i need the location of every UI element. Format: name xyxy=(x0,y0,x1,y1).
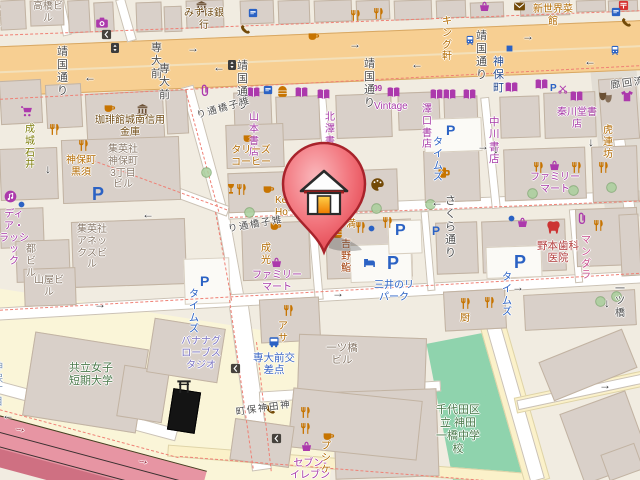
bookstore-icon xyxy=(316,87,331,102)
station-icon xyxy=(465,35,475,45)
direction-arrow: ← xyxy=(584,54,596,68)
map-label: みずほ銀 行 xyxy=(182,8,226,32)
map-label: Vintage xyxy=(374,101,408,113)
subway-entrance-icon xyxy=(101,29,112,40)
cafe-icon xyxy=(307,29,320,42)
map-label: 神保町 黒須 xyxy=(64,155,98,179)
direction-arrow: → xyxy=(512,280,524,294)
direction-arrow: → xyxy=(187,41,199,55)
atm-icon xyxy=(263,85,273,95)
map-label: タイムズ xyxy=(433,137,443,184)
direction-arrow: ← xyxy=(411,57,423,71)
restaurant-icon xyxy=(372,7,385,20)
dentist-icon xyxy=(546,220,561,235)
parking-icon: P xyxy=(200,273,209,289)
restaurant-icon xyxy=(299,406,312,419)
map-label: 一ツ橋 ビル xyxy=(320,342,364,367)
tree-icon xyxy=(606,182,617,193)
map-label: 神保町 xyxy=(493,56,504,95)
map-label: 澤口書店 xyxy=(422,104,432,151)
music-shop-icon xyxy=(4,190,17,203)
building xyxy=(618,214,640,277)
map-label: 千代田区 立 神田 一橋中学 校 xyxy=(429,404,487,456)
tree-icon xyxy=(201,167,212,178)
telephone-icon xyxy=(240,23,251,34)
restaurant-icon xyxy=(597,161,610,174)
map-label: タイムズ xyxy=(502,272,512,319)
fastfood-icon xyxy=(276,86,289,99)
cafe-icon xyxy=(103,101,116,114)
map-label: 珈琲館城南信用 金庫 xyxy=(90,115,170,139)
subway-entrance-icon xyxy=(230,363,241,374)
map-label: 靖国通り xyxy=(476,30,487,82)
direction-arrow: → xyxy=(522,29,534,43)
map-label: 高橋ビ ル xyxy=(30,1,66,25)
map-label: アサ xyxy=(278,321,288,345)
map-label: マンダラ xyxy=(581,235,591,282)
map-canvas[interactable]: .99PPPPPPPP 町 ビル高橋ビ ルみずほ銀 行キング軒新世界菜 館靖国通… xyxy=(0,0,640,480)
restaurant-icon xyxy=(282,304,295,317)
building xyxy=(278,0,311,25)
subway-entrance-icon xyxy=(271,433,282,444)
station-icon xyxy=(610,45,620,55)
direction-arrow: ↓ xyxy=(45,162,51,176)
direction-arrow: → xyxy=(94,297,106,311)
map-label: 秦川堂書 店 xyxy=(554,107,600,131)
building xyxy=(576,0,606,13)
hairdresser-icon xyxy=(558,84,568,94)
map-label: 専大前交 差点 xyxy=(251,352,297,377)
map-label: 虎連坊 xyxy=(603,125,613,160)
map-label: キング軒 xyxy=(442,16,452,63)
road xyxy=(115,0,137,43)
direction-arrow: ← xyxy=(84,70,96,84)
supermarket-icon xyxy=(20,105,33,118)
map-label: 中川書店 xyxy=(489,116,500,166)
poi-dot-icon xyxy=(18,201,25,208)
direction-arrow: ↓ xyxy=(604,296,610,310)
parking-icon: P xyxy=(550,83,557,94)
convenience-store-icon xyxy=(516,216,529,229)
map-label: 集英社 神保町 3丁目 ビル xyxy=(102,144,144,191)
map-label: セブン- イレブン xyxy=(287,458,333,480)
map-label: 一ツ橋 xyxy=(615,284,625,319)
elevator-icon xyxy=(109,42,121,54)
building xyxy=(0,79,43,125)
stationery-icon xyxy=(199,84,212,97)
map-label: 山屋ビ ル xyxy=(31,275,67,299)
convenience-store-icon xyxy=(300,440,313,453)
convenience-store-icon xyxy=(548,159,561,172)
convenience-store-icon xyxy=(478,0,491,13)
direction-arrow: ← xyxy=(2,408,14,422)
restaurant-icon xyxy=(77,139,90,152)
poi-dot-icon xyxy=(508,215,515,222)
house-location-pin-icon[interactable] xyxy=(270,138,380,258)
restaurant-icon xyxy=(299,422,312,435)
stationery-icon xyxy=(576,212,589,225)
restaurant-icon xyxy=(592,219,605,232)
map-label: 専大前 xyxy=(159,63,170,102)
map-label: 成城石井 xyxy=(25,124,35,171)
direction-arrow: ↓ xyxy=(588,135,594,149)
bookstore-icon xyxy=(569,89,584,104)
bookstore-icon xyxy=(386,85,401,100)
map-label: 野本歯科 医院 xyxy=(534,240,582,265)
restaurant-icon xyxy=(349,9,362,22)
direction-arrow: → xyxy=(349,37,361,51)
map-label: ファミリー マート xyxy=(251,270,303,294)
building xyxy=(435,221,479,274)
map-label: 町 ビル xyxy=(0,0,1,32)
parking-icon: P xyxy=(446,122,455,138)
shrine-icon xyxy=(176,378,192,394)
direction-arrow: → xyxy=(599,378,611,392)
restaurant-icon xyxy=(483,296,496,309)
direction-arrow: ↓ xyxy=(493,142,499,156)
telephone-icon xyxy=(621,16,632,27)
clothes-shop-icon xyxy=(620,89,634,103)
parking-icon: P xyxy=(387,253,399,274)
atm-icon xyxy=(248,8,258,18)
bookstore-icon xyxy=(534,77,549,92)
atm-icon xyxy=(611,7,621,17)
map-label: バナナグ ローブス タジオ xyxy=(179,336,223,371)
map-label: 靖国通り xyxy=(57,46,68,98)
map-label: タリーズ コーヒー xyxy=(229,145,273,169)
direction-arrow: → xyxy=(332,286,344,300)
building xyxy=(443,288,507,331)
direction-arrow: ← xyxy=(431,195,443,209)
photo-icon xyxy=(95,16,109,30)
map-label: 集英社 アネッ クスビ ル xyxy=(73,224,111,271)
parking-icon: P xyxy=(514,252,526,273)
map-label: 神保 丁目 xyxy=(0,362,3,409)
map-label: タイムズ xyxy=(189,289,199,336)
direction-arrow: ← xyxy=(142,207,154,221)
subway-stop-icon xyxy=(506,45,513,52)
building xyxy=(314,0,353,23)
bookstore-icon xyxy=(442,87,457,102)
direction-arrow: → xyxy=(477,139,489,153)
building xyxy=(0,0,27,31)
bookstore-icon xyxy=(294,85,309,100)
restaurant-icon xyxy=(381,216,394,229)
building xyxy=(67,0,91,34)
map-label: ファミリー マート xyxy=(529,172,581,196)
map-label: 厨 xyxy=(460,313,470,325)
bookstore-icon xyxy=(246,85,261,100)
building xyxy=(499,95,540,138)
restaurant-icon xyxy=(48,123,61,136)
bar-icon xyxy=(225,183,237,195)
post-box-icon xyxy=(513,0,526,13)
tree-icon xyxy=(244,207,255,218)
map-label: さくら通り xyxy=(445,195,456,260)
parking-icon: P xyxy=(395,222,406,240)
map-label: 三井のリ パーク xyxy=(373,280,415,304)
restaurant-icon xyxy=(459,297,472,310)
parking-icon: P xyxy=(432,224,440,238)
map-label: 共立女子 短期大学 xyxy=(64,362,118,388)
bookstore-icon xyxy=(504,80,519,95)
bookstore-icon xyxy=(462,87,477,102)
direction-arrow: ← xyxy=(213,60,225,74)
building xyxy=(591,145,639,203)
road xyxy=(421,211,436,291)
map-label: 新世界菜 館 xyxy=(530,4,576,28)
